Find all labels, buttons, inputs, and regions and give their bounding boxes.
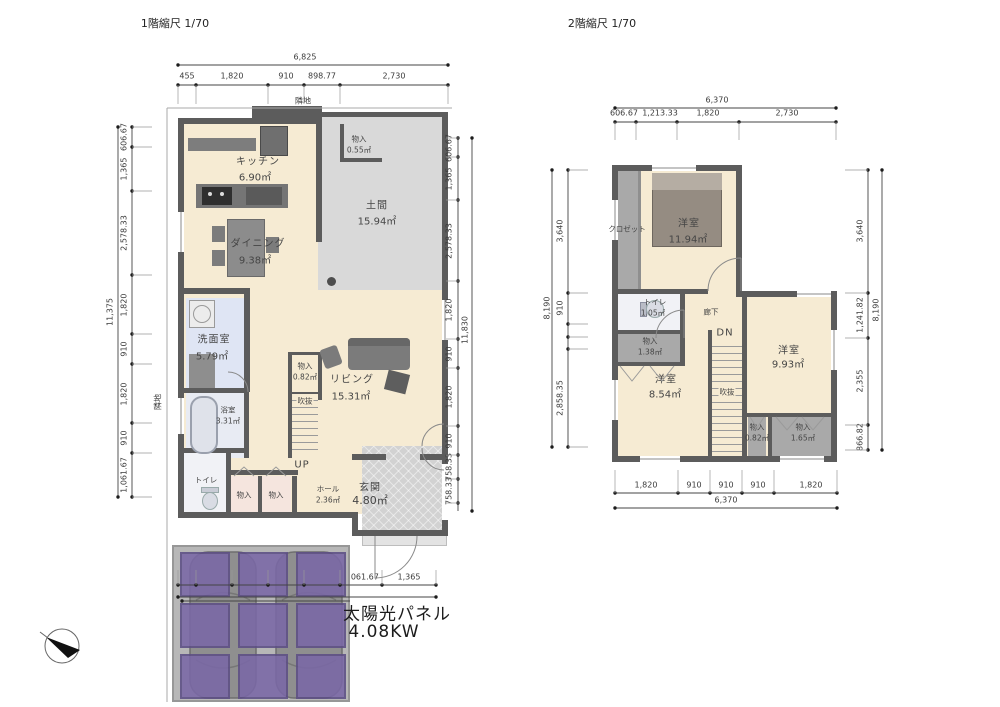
dim-label: 1,820 [221, 72, 244, 81]
room-area: 0.82㎡ [293, 372, 317, 383]
dim-label: 910 [445, 346, 454, 361]
room-label: 洗面室 [198, 331, 231, 346]
room-label: 物入 [352, 134, 367, 145]
wall [292, 476, 297, 512]
site-boundary-label: 隣地 [153, 394, 164, 410]
solar-panel [296, 552, 346, 597]
wall [340, 124, 344, 162]
dim-label: 910 [278, 72, 293, 81]
dim-label: 455 [179, 72, 194, 81]
solar-label: 太陽光パネル [343, 600, 451, 625]
floor2-stairs [712, 340, 742, 456]
room-area: 4.80㎡ [352, 492, 388, 508]
dim-label: 8,190 [543, 297, 552, 320]
dim-label: 6,370 [706, 96, 729, 105]
dim-label: 910 [750, 481, 765, 490]
room-area: 15.94㎡ [358, 213, 397, 228]
dim-label: 1,820 [120, 383, 129, 406]
solar-panel [238, 654, 288, 699]
chair [212, 250, 225, 266]
window [178, 398, 184, 434]
room-area: 9.38㎡ [239, 252, 271, 267]
floor1-title: 1階縮尺 1/70 [141, 15, 209, 31]
dim-label: 1,365 [445, 168, 454, 191]
room-label: クロゼット [608, 224, 646, 235]
wall [178, 512, 358, 518]
bathtub [190, 396, 218, 454]
room-label: ホール [317, 484, 340, 495]
dim-label: 2,355 [856, 370, 865, 393]
room-label: リビング [330, 371, 374, 386]
wall [831, 291, 837, 462]
room-label: 物入 [796, 422, 811, 433]
refrigerator [260, 126, 288, 156]
solar-capacity: 4.08KW [348, 622, 419, 642]
room-label: 浴室 [221, 405, 236, 416]
wall [747, 413, 837, 417]
stove-burner [208, 192, 212, 196]
dim-label: 606.67 [445, 134, 454, 162]
sink [246, 187, 282, 205]
wall [612, 289, 708, 294]
room-area: 3.31㎡ [216, 416, 240, 427]
room-area: 9.93㎡ [772, 356, 804, 371]
dim-label: 1,241.82 [856, 297, 865, 333]
window [612, 380, 618, 420]
dim-label: 1,820 [445, 386, 454, 409]
wall [340, 158, 382, 162]
wall [258, 476, 262, 512]
dim-label: 1,820 [697, 109, 720, 118]
wall [178, 118, 322, 124]
cars-graphic [0, 0, 1000, 707]
wall [228, 470, 298, 475]
dim-label: 910 [718, 481, 733, 490]
dim-label: 2,730 [383, 72, 406, 81]
dim-label: 1,365 [398, 573, 421, 582]
solar-panel [296, 603, 346, 648]
window [780, 456, 824, 462]
floorplan-drawing: 1階縮尺 1/70 2階縮尺 1/70 [0, 0, 1000, 707]
solar-panel [238, 552, 288, 597]
toilet-bowl [202, 492, 218, 510]
room-label: 洋室 [678, 215, 700, 230]
dim-label: 910 [120, 341, 129, 356]
dim-label: 1,365 [120, 158, 129, 181]
dim-label: 758.33 [445, 477, 454, 505]
kitchen-cabinet [188, 138, 256, 151]
dim-label: 11,830 [461, 316, 470, 344]
solar-panel [180, 552, 230, 597]
room-area: 6.90㎡ [239, 169, 271, 184]
room-area: 0.82㎡ [745, 433, 769, 444]
stairs-down-label: DN [716, 328, 733, 339]
wall [680, 293, 685, 366]
wall [615, 362, 683, 366]
washing-machine-door [193, 305, 211, 323]
room-label: 廊下 [704, 307, 719, 318]
dim-label: 910 [120, 430, 129, 445]
wall [244, 294, 250, 392]
stove-burner [220, 192, 224, 196]
room-label: 物入 [643, 336, 658, 347]
wall [178, 288, 250, 294]
dim-label: 11,375 [106, 298, 115, 326]
room-label: 洋室 [655, 371, 677, 386]
room-label: トイレ [644, 297, 667, 308]
solar-panel [180, 654, 230, 699]
window [178, 212, 184, 252]
room-area: 15.31㎡ [332, 388, 371, 403]
room-label: 洋室 [778, 342, 800, 357]
dimension-linework [0, 0, 1000, 707]
dim-label: 1,820 [445, 299, 454, 322]
wall [178, 118, 184, 518]
wall [252, 106, 322, 118]
room-label: ダイニング [231, 235, 286, 250]
dim-label: 910 [445, 433, 454, 448]
solar-panel [296, 654, 346, 699]
room-area: 2.36㎡ [316, 495, 340, 506]
dim-label: 2,578.33 [445, 223, 454, 259]
solar-panel [238, 603, 288, 648]
wall [226, 452, 231, 512]
bed-pillow [652, 173, 722, 190]
dim-label: 1,213.33 [642, 109, 678, 118]
wall [184, 388, 248, 393]
dim-label: 6,370 [715, 496, 738, 505]
wall [288, 352, 322, 355]
floor2-title: 2階縮尺 1/70 [568, 15, 636, 31]
room-label: 吹抜 [719, 387, 736, 398]
floor-lamp [327, 277, 336, 286]
window [640, 456, 680, 462]
dim-label: 606.67 [120, 123, 129, 151]
stairs-up-label: UP [294, 460, 309, 471]
dim-label: 8,190 [872, 299, 881, 322]
room-area: 1.38㎡ [638, 347, 662, 358]
dim-label: 910 [556, 300, 565, 315]
room-area: 11.94㎡ [669, 231, 708, 246]
window [797, 291, 831, 297]
room-area: 1.65㎡ [791, 433, 815, 444]
window [831, 330, 837, 370]
dim-label: 910 [686, 481, 701, 490]
dim-label: 606.67 [610, 109, 638, 118]
dim-label: 2,578.33 [120, 215, 129, 251]
wall [316, 118, 322, 242]
wall [615, 330, 683, 334]
sofa-back [348, 338, 410, 346]
room-area: 1.05㎡ [641, 308, 665, 319]
dim-label: 1,820 [800, 481, 823, 490]
dim-label: 2,858.35 [556, 380, 565, 416]
dim-label: 1,820 [635, 481, 658, 490]
window [652, 165, 696, 171]
dim-label: 1,061.67 [120, 457, 129, 493]
north-arrow-icon [40, 629, 80, 663]
wall [736, 165, 742, 297]
room-area: 5.79㎡ [196, 348, 228, 363]
dim-label: 2,730 [776, 109, 799, 118]
dim-label: 3,640 [556, 220, 565, 243]
site-boundary-label: 隣地 [295, 96, 311, 107]
room-label: 物入 [750, 422, 765, 433]
stove [202, 187, 232, 205]
wall [316, 112, 448, 117]
solar-panel [180, 603, 230, 648]
room-area: 8.54㎡ [649, 386, 681, 401]
room-label: 物入 [237, 490, 252, 501]
room-label: キッチン [236, 153, 280, 168]
room-label: 土間 [366, 197, 388, 212]
dim-label: 1,820 [120, 294, 129, 317]
chair [212, 226, 225, 242]
dim-label: 6,825 [294, 53, 317, 62]
dim-label: 3,640 [856, 220, 865, 243]
wall [352, 530, 448, 536]
room-label: 物入 [298, 361, 313, 372]
dim-label: 898.77 [308, 72, 336, 81]
dim-label: 866.82 [856, 423, 865, 451]
room-area: 0.55㎡ [347, 145, 371, 156]
wall [352, 454, 386, 460]
room-label: トイレ [195, 475, 218, 486]
room-label: 物入 [269, 490, 284, 501]
room-label: 吹抜 [297, 396, 314, 407]
